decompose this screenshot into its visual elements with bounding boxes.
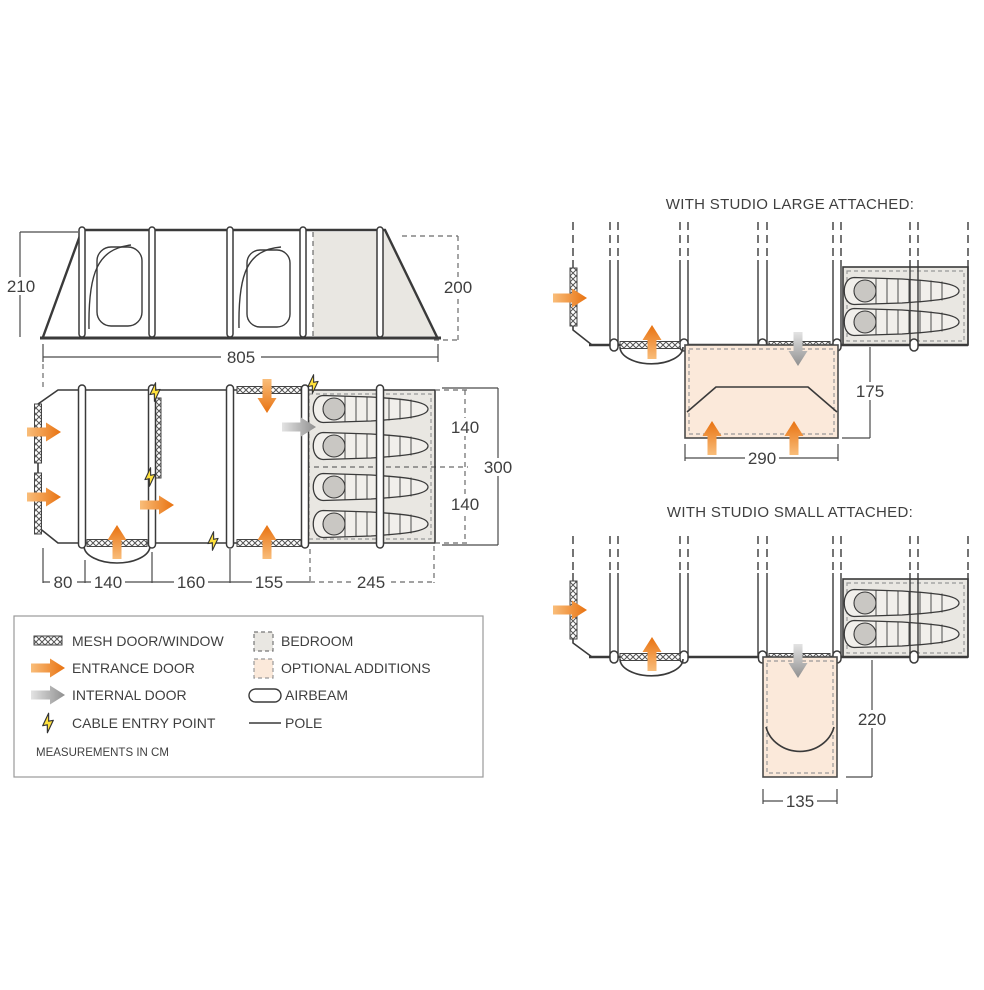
studio-large-diagram: WITH STUDIO LARGE ATTACHED: xyxy=(553,196,968,468)
cable-entry-icon xyxy=(206,531,221,551)
dim-290-label: 290 xyxy=(748,449,776,468)
sleeping-bag xyxy=(844,278,959,305)
dim-studio-small-width: 135 xyxy=(763,789,837,811)
optional-swatch-icon xyxy=(254,659,273,678)
dim-studio-large-depth: 175 xyxy=(842,347,887,438)
dim-220-label: 220 xyxy=(858,710,886,729)
studio-small-title: WITH STUDIO SMALL ATTACHED: xyxy=(667,504,913,521)
dim-140-lower-label: 140 xyxy=(451,495,479,514)
legend-label: OPTIONAL ADDITIONS xyxy=(281,660,431,676)
airbeam-pill-icon xyxy=(249,689,281,702)
dim-side-length: 805 xyxy=(43,344,438,387)
dim-175-label: 175 xyxy=(856,382,884,401)
legend-label: MESH DOOR/WINDOW xyxy=(72,633,224,649)
dim-155-label: 155 xyxy=(255,573,283,592)
entrance-arrow-icon xyxy=(27,423,61,442)
dim-135-label: 135 xyxy=(786,792,814,811)
tent-floor-plan: 140 140 300 80 140 160 xyxy=(27,374,515,592)
legend-label: INTERNAL DOOR xyxy=(72,687,187,703)
dim-200-label: 200 xyxy=(444,278,472,297)
dim-140-upper-label: 140 xyxy=(451,418,479,437)
legend-label: ENTRANCE DOOR xyxy=(72,660,195,676)
legend-label: POLE xyxy=(285,715,322,731)
mesh-swatch-icon xyxy=(34,636,62,645)
studio-small-diagram: WITH STUDIO SMALL ATTACHED: xyxy=(553,504,968,811)
mesh-panels xyxy=(35,387,302,547)
bedroom-swatch-icon xyxy=(254,632,273,651)
tent-dimensions-diagram: 210 200 805 xyxy=(0,0,984,985)
left-wall-chamfer xyxy=(573,326,592,345)
dim-140-label: 140 xyxy=(94,573,122,592)
left-wall-chamfer xyxy=(573,639,592,657)
entrance-arrow-icon xyxy=(27,488,61,507)
dim-300-label: 300 xyxy=(484,458,512,477)
dim-160-label: 160 xyxy=(177,573,205,592)
dim-sections: 80 140 160 155 245 xyxy=(43,546,434,592)
sleeping-bag xyxy=(844,621,959,648)
sleeping-bag xyxy=(844,590,959,617)
sleeping-bag xyxy=(844,309,959,336)
side-window-2 xyxy=(239,247,290,328)
legend: MESH DOOR/WINDOW ENTRANCE DOOR INTERNAL … xyxy=(14,616,483,777)
side-bedroom-shade xyxy=(313,232,436,336)
mesh-left-lower xyxy=(35,473,42,534)
side-window-1 xyxy=(89,245,142,329)
studio-large-title: WITH STUDIO LARGE ATTACHED: xyxy=(666,196,914,213)
entrance-arrow-icon xyxy=(140,496,174,515)
legend-label: AIRBEAM xyxy=(285,687,348,703)
dim-210-label: 210 xyxy=(7,277,35,296)
tent-side-view: 210 200 805 xyxy=(4,227,475,387)
legend-note: MEASUREMENTS IN CM xyxy=(36,747,169,759)
dim-80-label: 80 xyxy=(54,573,73,592)
dim-side-left: 210 xyxy=(4,232,78,337)
legend-label: BEDROOM xyxy=(281,633,353,649)
dim-245-label: 245 xyxy=(357,573,385,592)
dim-studio-small-depth: 220 xyxy=(846,660,889,777)
studio-small-area xyxy=(763,657,837,777)
entrance-arrow-icon xyxy=(258,379,277,413)
dim-805-label: 805 xyxy=(227,348,255,367)
legend-label: CABLE ENTRY POINT xyxy=(72,715,216,731)
diagram-canvas: 210 200 805 xyxy=(0,0,984,985)
studio-large-area xyxy=(685,345,838,438)
